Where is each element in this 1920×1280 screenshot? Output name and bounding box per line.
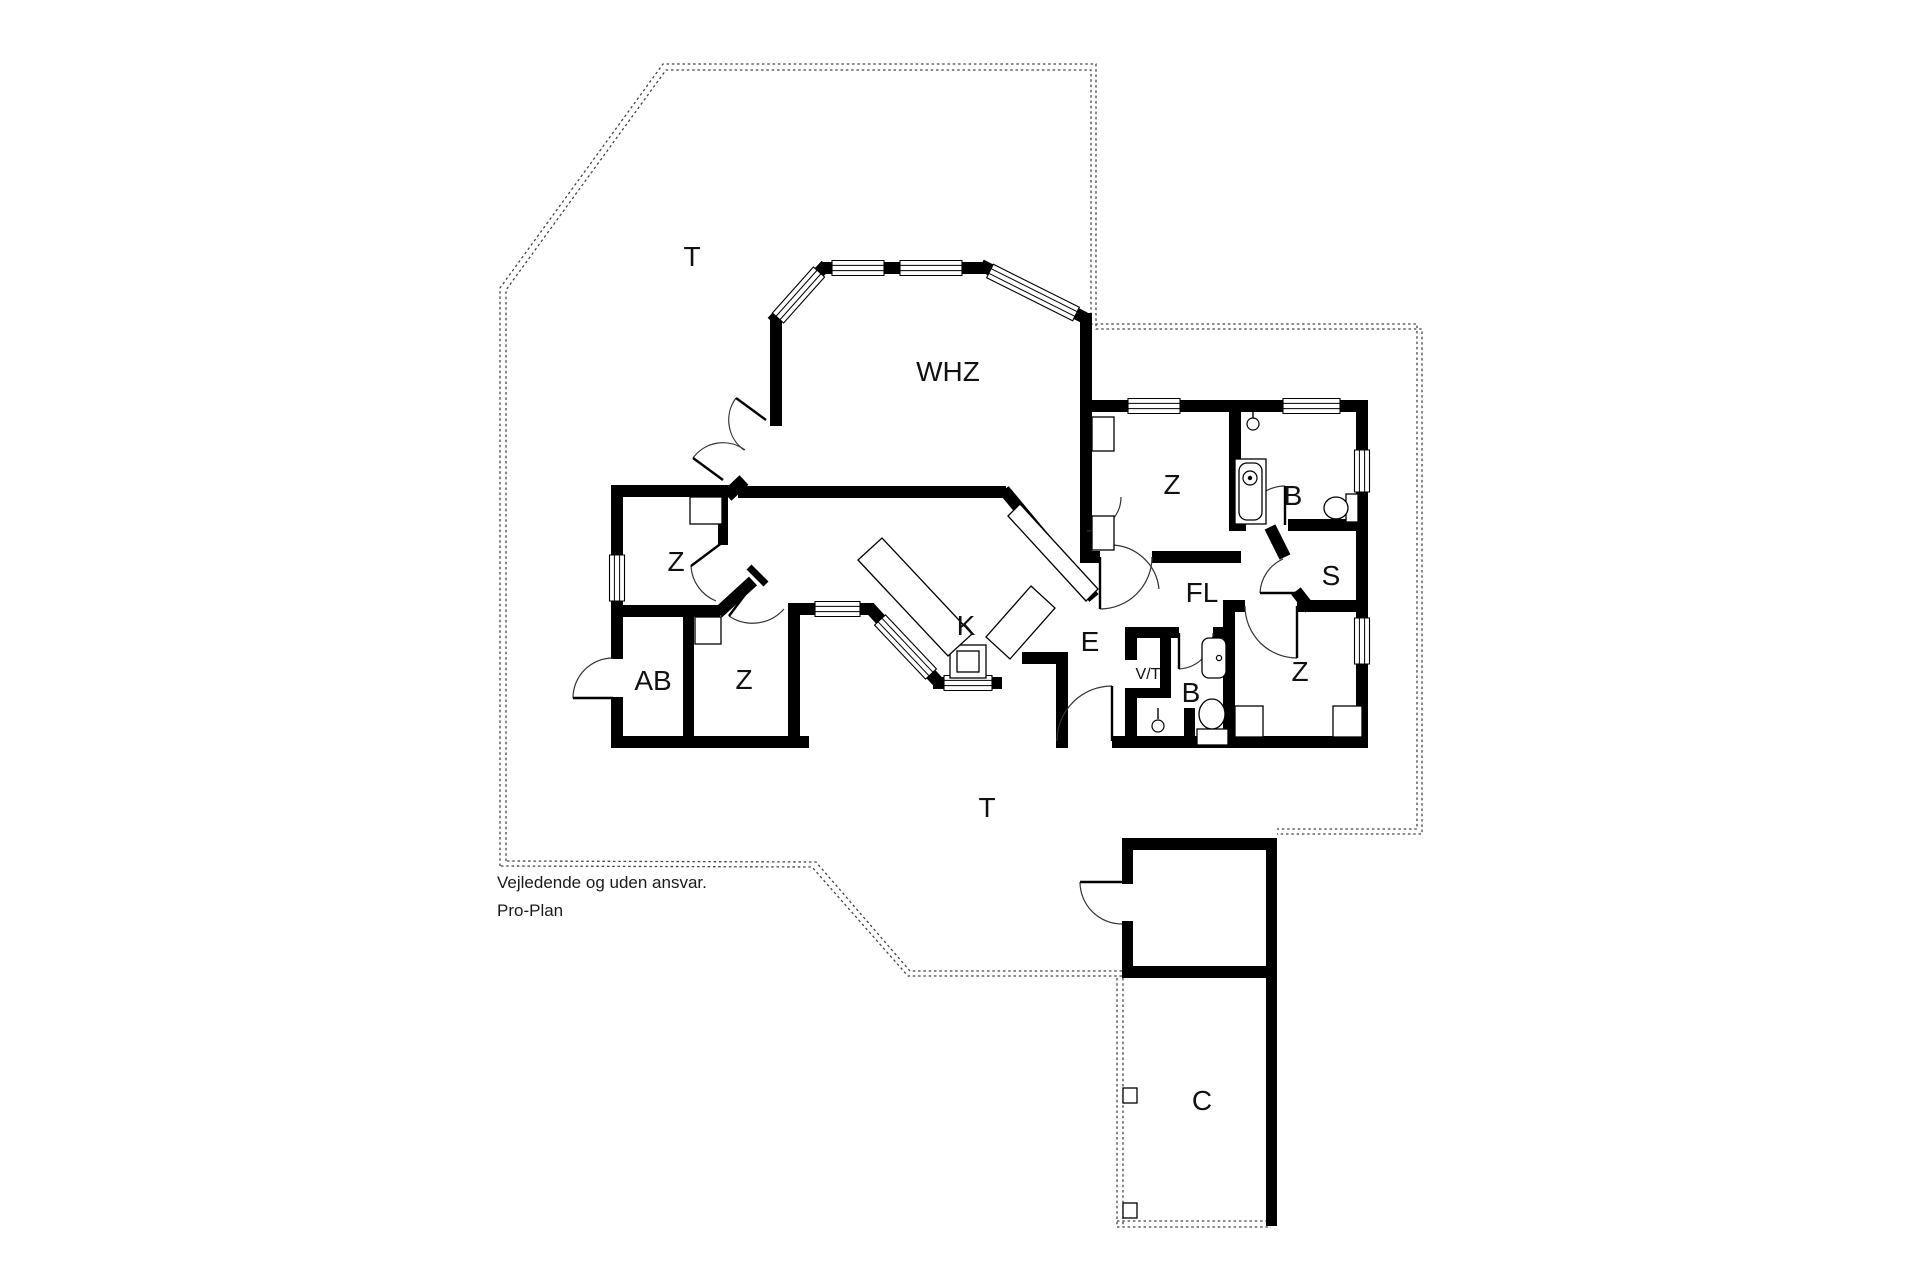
room-label-washer-dryer: V/T (1136, 666, 1161, 683)
room-label-bedroom-top-right: Z (1163, 469, 1180, 500)
room-label-carport: C (1192, 1085, 1212, 1116)
furniture-rect (695, 617, 721, 644)
wall (613, 485, 732, 497)
wall (1125, 688, 1171, 698)
room-label-bedroom-left-upper: Z (667, 546, 684, 577)
wall (611, 736, 809, 748)
room-label-terrace-top: T (683, 241, 700, 272)
wall (1122, 838, 1277, 850)
room-label-kitchen: K (957, 610, 976, 641)
furniture-rect (1092, 516, 1114, 550)
wall (1152, 551, 1241, 563)
wall (1080, 313, 1092, 412)
window-frame (1283, 399, 1340, 414)
room-label-terrace-bottom: T (978, 792, 995, 823)
wall (770, 318, 782, 426)
disclaimer-line-1: Vejledende og uden ansvar. (497, 869, 707, 897)
wall (683, 605, 694, 748)
disclaimer-text: Vejledende og uden ansvar. Pro-Plan (497, 869, 707, 925)
wall (1080, 412, 1092, 563)
furniture-rect (1333, 706, 1362, 737)
toilet-bowl (1324, 497, 1348, 519)
wall (738, 486, 1006, 498)
disclaimer-line-2: Pro-Plan (497, 897, 707, 925)
floor-plan-drawing: TWHZZBSFLZABZKEV/TBZTC (0, 0, 1920, 1280)
furniture-rect (690, 497, 722, 524)
wall (1266, 978, 1277, 1226)
wall (1266, 838, 1277, 978)
window-frame (1355, 450, 1370, 492)
floor-plan-page: TWHZZBSFLZABZKEV/TBZTC Vejledende og ude… (0, 0, 1920, 1280)
fixture-circle (1248, 476, 1251, 479)
wall (788, 605, 800, 748)
fixture-circle (1152, 720, 1164, 732)
wall (1112, 736, 1368, 748)
window-frame (1355, 618, 1370, 664)
furniture-rect (1092, 417, 1114, 451)
fixture-rounded (1202, 638, 1226, 678)
wall (611, 607, 623, 659)
wall (613, 605, 720, 617)
room-label-utility-ab: AB (634, 665, 671, 696)
window-frame (900, 261, 962, 276)
wall (1122, 966, 1277, 978)
room-label-dining: E (1081, 626, 1100, 657)
toilet-bowl (1199, 699, 1225, 729)
furniture-rect (1123, 1203, 1137, 1218)
window-frame (610, 555, 625, 601)
room-label-bath-top: B (1284, 480, 1303, 511)
wall (1125, 627, 1137, 660)
wall (1080, 551, 1100, 563)
fixture-circle (1216, 655, 1221, 660)
furniture-rect (957, 651, 979, 672)
furniture-rect (1235, 706, 1263, 737)
furniture-rect (1123, 1088, 1137, 1103)
room-label-hall: FL (1186, 577, 1219, 608)
window-frame (1128, 399, 1180, 414)
room-label-living-room: WHZ (916, 356, 980, 387)
fixture-circle (1247, 418, 1259, 430)
wall (1213, 627, 1234, 638)
window-frame (832, 261, 884, 276)
wall (1122, 838, 1133, 884)
room-label-bedroom-bottom-right: Z (1291, 656, 1308, 687)
room-label-bath-bottom: B (1182, 677, 1201, 708)
room-label-bedroom-left-lower: Z (735, 664, 752, 695)
fixture-rect (1197, 729, 1228, 745)
room-label-sauna: S (1322, 560, 1341, 591)
window-frame (815, 602, 860, 617)
wall (1184, 708, 1195, 742)
